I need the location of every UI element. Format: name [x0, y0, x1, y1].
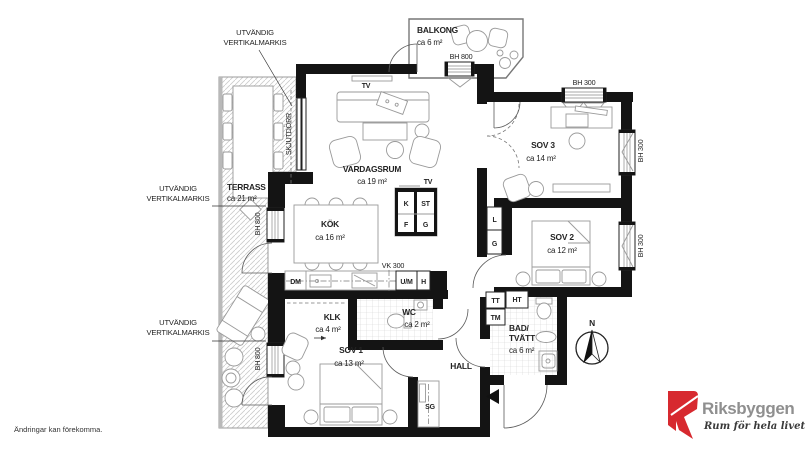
svg-text:UTVÄNDIG: UTVÄNDIG	[159, 318, 197, 327]
compass-icon: N	[576, 318, 608, 364]
riksbyggen-logo: Riksbyggen Rum för hela livet	[668, 391, 806, 439]
closet-g: G	[492, 241, 498, 248]
room-label-hall: HALL	[450, 361, 472, 371]
washer-tt: TT	[491, 298, 500, 305]
laptop	[566, 114, 588, 127]
round-table	[387, 142, 404, 159]
room-label-sov1: SOV 1	[339, 345, 363, 355]
bh800-kitchen-label: BH 800	[253, 212, 262, 235]
room-label-balkong: BALKONG	[417, 25, 458, 35]
room-label-kok: KÖK	[321, 219, 339, 229]
cabinet-g: G	[423, 222, 429, 229]
coffee-table	[363, 123, 407, 140]
room-area-sov2: ca 12 m²	[547, 246, 577, 255]
floor-plan-page: TERRASS ca 21 m² BALKONG ca 6 m²	[0, 0, 810, 455]
desk-chair	[569, 133, 585, 149]
floor-plan-svg: TERRASS ca 21 m² BALKONG ca 6 m²	[0, 0, 810, 455]
wc-sink	[414, 300, 427, 310]
room-label-klk: KLK	[324, 312, 341, 322]
room-area-sov1: ca 13 m²	[334, 359, 364, 368]
window-bh800-sov1	[267, 343, 284, 377]
skjutdorr-label: SKJUTDÖRR	[284, 113, 293, 155]
svg-text:VERTIKALMARKIS: VERTIKALMARKIS	[147, 328, 210, 337]
bh300-sov2-label: BH 300	[636, 234, 645, 257]
cabinet-h: H	[421, 279, 426, 286]
svg-text:VERTIKALMARKIS: VERTIKALMARKIS	[224, 38, 287, 47]
side-table	[415, 124, 429, 138]
brand-name: Riksbyggen	[702, 399, 794, 418]
svg-text:VERTIKALMARKIS: VERTIKALMARKIS	[147, 194, 210, 203]
room-area-klk: ca 4 m²	[315, 325, 341, 334]
window-bh300-sov3	[619, 130, 635, 175]
north-label: N	[589, 318, 595, 328]
riksbyggen-logo-mark-icon	[668, 391, 698, 439]
dishwasher-dm: DM	[290, 279, 301, 286]
double-door-vardagsrum	[487, 104, 519, 168]
cabinet-ht: HT	[513, 297, 523, 304]
sg-closet: SG	[418, 381, 439, 427]
cabinet-st: ST	[421, 201, 430, 208]
bh300-sov3-label: BH 300	[636, 139, 645, 162]
bh800-balcony-label: BH 800	[450, 52, 473, 61]
svg-text:UTVÄNDIG: UTVÄNDIG	[236, 28, 274, 37]
room-area-balkong: ca 6 m²	[417, 38, 443, 47]
wc: WC ca 2 m²	[357, 299, 433, 340]
room-area-terrass: ca 21 m²	[227, 194, 257, 203]
hall: HALL SG	[418, 361, 472, 427]
sofa	[337, 92, 429, 122]
brand-tagline: Rum för hela livet	[703, 421, 806, 432]
bad-tvatt: TT TM HT BAD/ TVÄTT ca 6 m²	[486, 291, 557, 375]
cabinet-k: K	[404, 201, 409, 208]
room-label-bad1: BAD/	[509, 323, 530, 333]
tv-bench	[352, 76, 392, 81]
sov2: SOV 2 ca 12 m²	[516, 221, 606, 286]
room-area-vardagsrum: ca 19 m²	[357, 177, 387, 186]
kitchen-counter: DM U/M H	[285, 271, 430, 290]
room-area-kok: ca 16 m²	[315, 233, 345, 242]
room-label-terrass: TERRASS	[227, 182, 266, 192]
window-bh800-kitchen	[267, 208, 284, 242]
room-label-wc: WC	[402, 307, 416, 317]
sov3: SOV 3 ca 14 m²	[502, 106, 612, 203]
room-area-bad: ca 6 m²	[509, 346, 535, 355]
bh800-sov1-label: BH 800	[253, 347, 262, 370]
vardagsrum: TV VARDAGSRUM ca 19 m²	[328, 76, 442, 186]
armchair-right	[408, 135, 442, 169]
room-area-wc: ca 2 m²	[404, 320, 430, 329]
door-sov3	[494, 102, 520, 128]
disclaimer-text: Ändringar kan förekomma.	[14, 425, 102, 434]
window-bh300-sov2	[619, 222, 635, 270]
tv-label-living: TV	[362, 83, 371, 90]
room-label-sov2: SOV 2	[550, 232, 574, 242]
room-area-sov3: ca 14 m²	[526, 154, 556, 163]
bath-sink	[536, 332, 556, 343]
dryer-tm: TM	[491, 315, 501, 322]
pantry-block: K ST F G TV	[395, 179, 437, 236]
hall-closets: L G	[487, 207, 502, 254]
room-label-sov3: SOV 3	[531, 140, 555, 150]
oven-micro-um: U/M	[400, 279, 413, 286]
svg-text:UTVÄNDIG: UTVÄNDIG	[159, 184, 197, 193]
vk300-label: VK 300	[382, 261, 405, 270]
door-entrance	[486, 385, 547, 428]
room-label-vardagsrum: VARDAGSRUM	[343, 164, 402, 174]
door-sov1	[383, 347, 413, 377]
sg-label: SG	[425, 404, 435, 411]
tv-label-pantry: TV	[424, 179, 433, 186]
sov3-shelf	[553, 184, 610, 192]
bh300-top-label: BH 300	[573, 78, 596, 87]
door-sov2	[473, 255, 506, 288]
room-label-bad2: TVÄTT	[509, 333, 536, 343]
door-wc	[438, 309, 468, 339]
window-bh800-balcony	[445, 62, 474, 87]
